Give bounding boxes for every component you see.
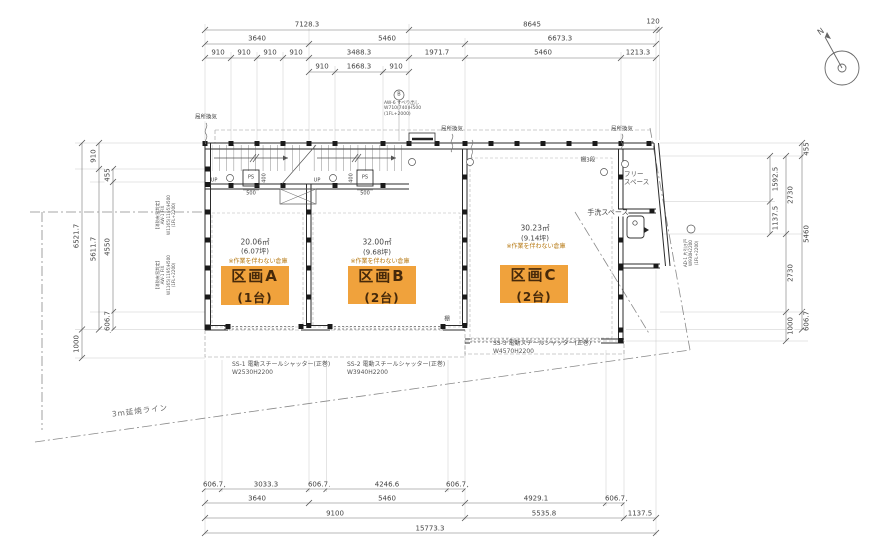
dim-label: 5460 bbox=[377, 36, 397, 43]
dim-label: 4929.1 bbox=[523, 496, 550, 503]
dim-label: 455 bbox=[105, 167, 112, 182]
dim-label: 910 bbox=[91, 148, 98, 163]
walls bbox=[205, 143, 670, 343]
up-label: UP bbox=[314, 179, 321, 184]
sliding-door-line: (1FL+2200) bbox=[694, 239, 699, 267]
dim-label: 910 bbox=[388, 64, 403, 71]
dim-label: 455 bbox=[804, 141, 811, 156]
dim-label: 3033.3 bbox=[253, 482, 280, 489]
dim-label: 606.7 bbox=[202, 482, 224, 489]
shutter-name: SS-3 電動スチールシャッター(正巻) bbox=[493, 340, 591, 348]
shutter-size: W3940H2200 bbox=[347, 369, 445, 377]
dim-label: 6673.3 bbox=[547, 36, 574, 43]
vent-label: 局所換気 bbox=[441, 127, 463, 133]
floor-plan-drawing bbox=[0, 0, 870, 557]
section-a-capacity: (1台) bbox=[221, 289, 289, 306]
dim-label: 120 bbox=[645, 19, 660, 26]
free-space-label: フリー スペース bbox=[624, 170, 649, 186]
dim-label: 606.7 bbox=[105, 310, 112, 332]
section-a-area: 20.06㎡ bbox=[241, 238, 270, 246]
section-b-area: 32.00㎡ bbox=[363, 238, 392, 246]
free-space-line: スペース bbox=[624, 178, 649, 186]
shutter-name: SS-2 電動スチールシャッター(正巻) bbox=[347, 361, 445, 369]
hand-wash-space-label: 手洗スペース bbox=[587, 210, 628, 217]
section-b-badge: 区画B (2台) bbox=[348, 266, 416, 304]
ps-label: PS bbox=[362, 176, 368, 181]
columns bbox=[203, 141, 659, 343]
dim-label: 400 bbox=[350, 173, 355, 183]
shutter-ss2-label: SS-2 電動スチールシャッター(正巻) W3940H2200 bbox=[347, 361, 445, 376]
section-c-tsubo: (9.14坪) bbox=[521, 236, 549, 243]
stairs bbox=[212, 145, 407, 204]
ps-label: PS bbox=[248, 176, 254, 181]
dim-label: 5611.7 bbox=[91, 236, 98, 263]
dim-label: 6521.7 bbox=[74, 223, 81, 250]
dim-label: 1000 bbox=[788, 316, 795, 336]
shutter-size: W2530H2200 bbox=[232, 369, 330, 377]
dim-label: 3640 bbox=[247, 36, 267, 43]
floor-plan: 7128.3 8645 120 3640 5460 6673.3 910 910… bbox=[0, 0, 870, 557]
dim-label: 2730 bbox=[788, 185, 795, 205]
shutter-ss1-label: SS-1 電動スチールシャッター(正巻) W2530H2200 bbox=[232, 361, 330, 376]
section-a-name: 区画A bbox=[221, 265, 289, 286]
dim-label: 606.7 bbox=[307, 482, 329, 489]
section-b-capacity: (2台) bbox=[348, 289, 416, 306]
section-c-badge: 区画C (2台) bbox=[500, 265, 568, 303]
dim-label: 5460 bbox=[377, 496, 397, 503]
dim-label: 910 bbox=[262, 50, 277, 57]
dim-label: 3640 bbox=[247, 496, 267, 503]
section-c-note: ※作業を伴わない倉庫 bbox=[506, 244, 565, 250]
window-note-line: (1FL+2000) bbox=[384, 112, 421, 117]
shutter-ss3-label: SS-3 電動スチールシャッター(正巻) W4570H2200 bbox=[493, 340, 591, 355]
dim-label: 8645 bbox=[522, 22, 542, 29]
vent-label: 局所換気 bbox=[611, 127, 633, 133]
dim-label: 1000 bbox=[74, 334, 81, 354]
section-c-capacity: (2台) bbox=[500, 288, 568, 305]
shelf-3-label: 棚3段 bbox=[581, 158, 596, 164]
dim-label: 3488.3 bbox=[346, 50, 373, 57]
dim-label: 910 bbox=[314, 64, 329, 71]
dim-label: 5460 bbox=[533, 50, 553, 57]
dim-label: 7128.3 bbox=[294, 22, 321, 29]
dim-label: 5460 bbox=[804, 224, 811, 244]
section-b-name: 区画B bbox=[348, 265, 416, 286]
window-note: AW-6 すべり出し W710(740)H500 (1FL+2000) bbox=[384, 101, 421, 117]
dim-label: 1213.3 bbox=[625, 50, 652, 57]
vent-label: 局所換気 bbox=[195, 115, 217, 121]
dim-label: 400 bbox=[263, 173, 268, 183]
shutter-size: W4570H2200 bbox=[493, 348, 591, 356]
free-space-line: フリー bbox=[624, 170, 649, 178]
dimension-lines bbox=[82, 30, 802, 533]
window-mark: B bbox=[397, 93, 400, 98]
up-label: UP bbox=[211, 179, 218, 184]
section-b-tsubo: (9.68坪) bbox=[363, 250, 391, 257]
dim-label: 500 bbox=[360, 192, 370, 197]
fire-window-line: (1FL+2200) bbox=[171, 255, 176, 295]
dim-label: 2730 bbox=[788, 263, 795, 283]
dim-label: 5535.8 bbox=[531, 511, 558, 518]
dim-label: 1137.5 bbox=[773, 205, 780, 232]
dim-label: 1668.3 bbox=[346, 64, 373, 71]
dim-label: 606.7 bbox=[804, 310, 811, 332]
dim-label: 4550 bbox=[105, 237, 112, 257]
shelf-label: 棚 bbox=[444, 317, 450, 323]
dim-label: 1971.7 bbox=[424, 50, 451, 57]
section-c-name: 区画C bbox=[500, 264, 568, 285]
section-a-badge: 区画A (1台) bbox=[221, 266, 289, 305]
dim-label: 910 bbox=[236, 50, 251, 57]
fire-window-line: (1FL+2200) bbox=[171, 195, 176, 235]
dimension-ticks bbox=[79, 27, 805, 536]
dim-label: 500 bbox=[246, 192, 256, 197]
shutter-name: SS-1 電動スチールシャッター(正巻) bbox=[232, 361, 330, 369]
dim-label: 9100 bbox=[325, 511, 345, 518]
fire-window-note: 【消防有窓判定】 AW-1 FIX W1165(1195)H500 (1FL+2… bbox=[155, 255, 177, 295]
dim-label: 4246.6 bbox=[374, 482, 401, 489]
dim-label: 1592.5 bbox=[773, 166, 780, 193]
fire-window-note: 【消防有窓判定】 AW-1 FIX W1165(1195)H500 (1FL+2… bbox=[155, 195, 177, 235]
section-a-tsubo: (6.07坪) bbox=[241, 249, 269, 256]
window-note-line: W710(740)H500 bbox=[384, 106, 421, 111]
dim-label: 15773.3 bbox=[415, 526, 446, 533]
sliding-door-note: AD-1 片引き戸 W930H2200 (1FL+2200) bbox=[683, 239, 699, 267]
dim-label: 606.7 bbox=[604, 496, 626, 503]
section-c-area: 30.23㎡ bbox=[521, 224, 550, 232]
extension-lines bbox=[75, 24, 808, 535]
north-arrow-icon bbox=[825, 32, 859, 85]
dim-label: 910 bbox=[288, 50, 303, 57]
dim-label: 910 bbox=[210, 50, 225, 57]
dim-label: 1137.5 bbox=[627, 511, 654, 518]
dim-label: 606.7 bbox=[445, 482, 467, 489]
